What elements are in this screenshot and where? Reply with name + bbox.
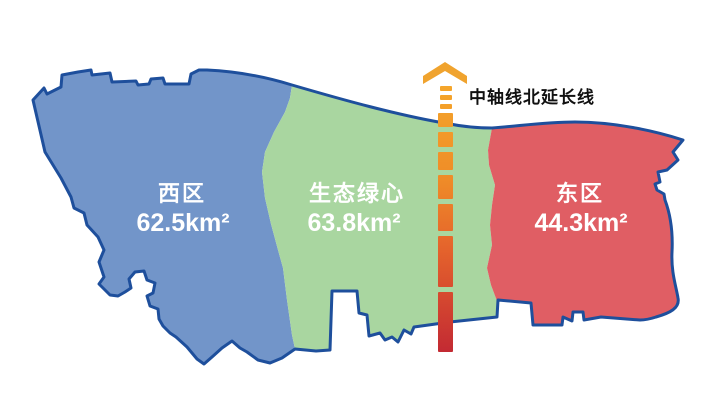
east-district-area-label: 44.3km²	[534, 209, 627, 237]
axis-dash-segment	[438, 236, 453, 287]
district-map-canvas: 中轴线北延长线 西区 62.5km² 生态绿心 63.8km² 东区 44.3k…	[0, 0, 718, 407]
axis-dash-segment	[440, 104, 452, 109]
green-heart-name-label: 生态绿心	[309, 181, 405, 206]
axis-dash-segment	[438, 175, 453, 199]
west-district-name-label: 西区	[158, 181, 206, 206]
green-heart-area-label: 63.8km²	[307, 209, 400, 237]
north-arrow-icon	[423, 62, 467, 84]
axis-dash-segment	[438, 132, 453, 147]
central-axis-label: 中轴线北延长线	[469, 87, 595, 107]
axis-dash-segment	[438, 292, 453, 352]
central-axis-dashed-line	[438, 86, 453, 352]
axis-dash-segment	[440, 86, 452, 91]
west-district-area-label: 62.5km²	[136, 209, 229, 237]
axis-dash-segment	[438, 113, 453, 127]
district-map-svg: 中轴线北延长线 西区 62.5km² 生态绿心 63.8km² 东区 44.3k…	[0, 0, 718, 407]
axis-dash-segment	[440, 95, 452, 100]
axis-dash-segment	[438, 204, 453, 231]
axis-dash-segment	[438, 152, 453, 170]
east-district-name-label: 东区	[556, 181, 604, 206]
